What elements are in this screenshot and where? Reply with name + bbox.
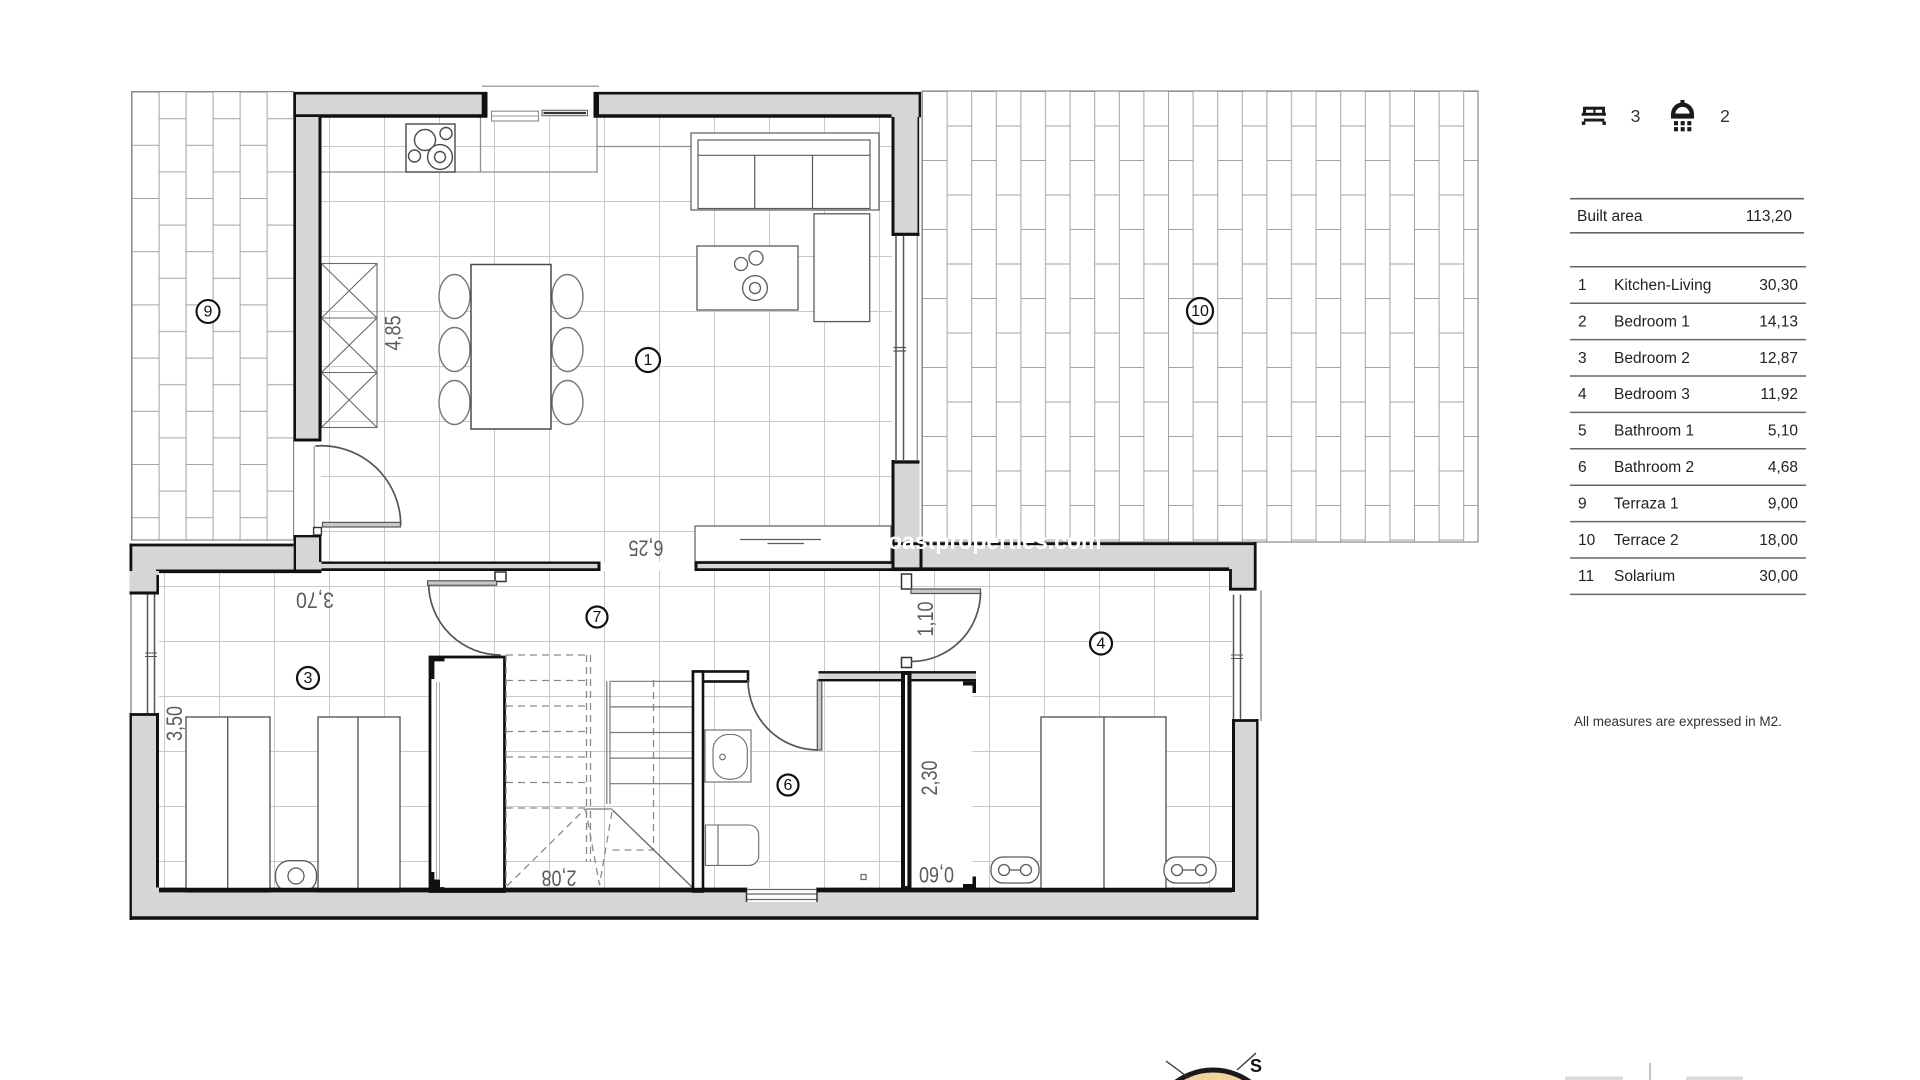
- svg-text:12,87: 12,87: [1759, 350, 1798, 367]
- svg-text:1: 1: [1578, 277, 1587, 294]
- svg-text:3: 3: [1631, 106, 1641, 126]
- svg-text:18,00: 18,00: [1759, 532, 1798, 549]
- svg-text:All measures are expressed in: All measures are expressed in M2.: [1574, 714, 1782, 729]
- svg-text:4: 4: [1578, 386, 1587, 403]
- svg-text:4,68: 4,68: [1768, 459, 1798, 476]
- svg-text:1,10: 1,10: [913, 602, 938, 637]
- svg-text:113,20: 113,20: [1746, 208, 1793, 225]
- svg-text:11,92: 11,92: [1760, 386, 1798, 403]
- svg-text:Terrace 2: Terrace 2: [1614, 532, 1679, 549]
- svg-text:6,25: 6,25: [629, 536, 664, 561]
- svg-text:11: 11: [1578, 568, 1594, 585]
- svg-text:14,13: 14,13: [1759, 313, 1798, 330]
- svg-text:S: S: [1250, 1056, 1262, 1076]
- svg-text:3,50: 3,50: [162, 706, 187, 741]
- svg-text:9: 9: [204, 304, 213, 321]
- svg-text:Built area: Built area: [1577, 208, 1643, 225]
- svg-text:Kitchen-Living: Kitchen-Living: [1614, 277, 1711, 294]
- svg-text:9,00: 9,00: [1768, 495, 1799, 512]
- svg-text:3: 3: [304, 670, 313, 687]
- svg-text:2,30: 2,30: [917, 761, 942, 796]
- svg-text:Terraza 1: Terraza 1: [1614, 495, 1679, 512]
- svg-text:6: 6: [784, 777, 793, 794]
- svg-text:Solarium: Solarium: [1614, 568, 1675, 585]
- svg-text:oastproperties.com: oastproperties.com: [888, 528, 1101, 554]
- svg-text:0,60: 0,60: [919, 862, 954, 887]
- svg-text:Bedroom 2: Bedroom 2: [1614, 350, 1690, 367]
- svg-text:30,30: 30,30: [1759, 277, 1798, 294]
- svg-text:2: 2: [1578, 313, 1587, 330]
- svg-text:4: 4: [1097, 636, 1106, 653]
- svg-text:5,10: 5,10: [1768, 423, 1799, 440]
- svg-text:Bathroom 2: Bathroom 2: [1614, 459, 1694, 476]
- svg-text:2,08: 2,08: [542, 866, 577, 891]
- svg-text:5: 5: [1578, 423, 1587, 440]
- svg-text:1: 1: [644, 352, 653, 369]
- svg-text:10: 10: [1578, 532, 1596, 549]
- svg-text:Bathroom 1: Bathroom 1: [1614, 423, 1694, 440]
- svg-text:3: 3: [1578, 350, 1587, 367]
- svg-text:Bedroom 1: Bedroom 1: [1614, 313, 1690, 330]
- svg-text:30,00: 30,00: [1759, 568, 1798, 585]
- svg-text:3,70: 3,70: [296, 588, 334, 613]
- svg-text:Bedroom 3: Bedroom 3: [1614, 386, 1690, 403]
- svg-text:6: 6: [1578, 459, 1587, 476]
- svg-text:9: 9: [1578, 495, 1587, 512]
- svg-text:10: 10: [1191, 303, 1209, 320]
- svg-text:2: 2: [1720, 106, 1730, 126]
- svg-text:7: 7: [593, 609, 602, 626]
- svg-text:4,85: 4,85: [381, 316, 406, 351]
